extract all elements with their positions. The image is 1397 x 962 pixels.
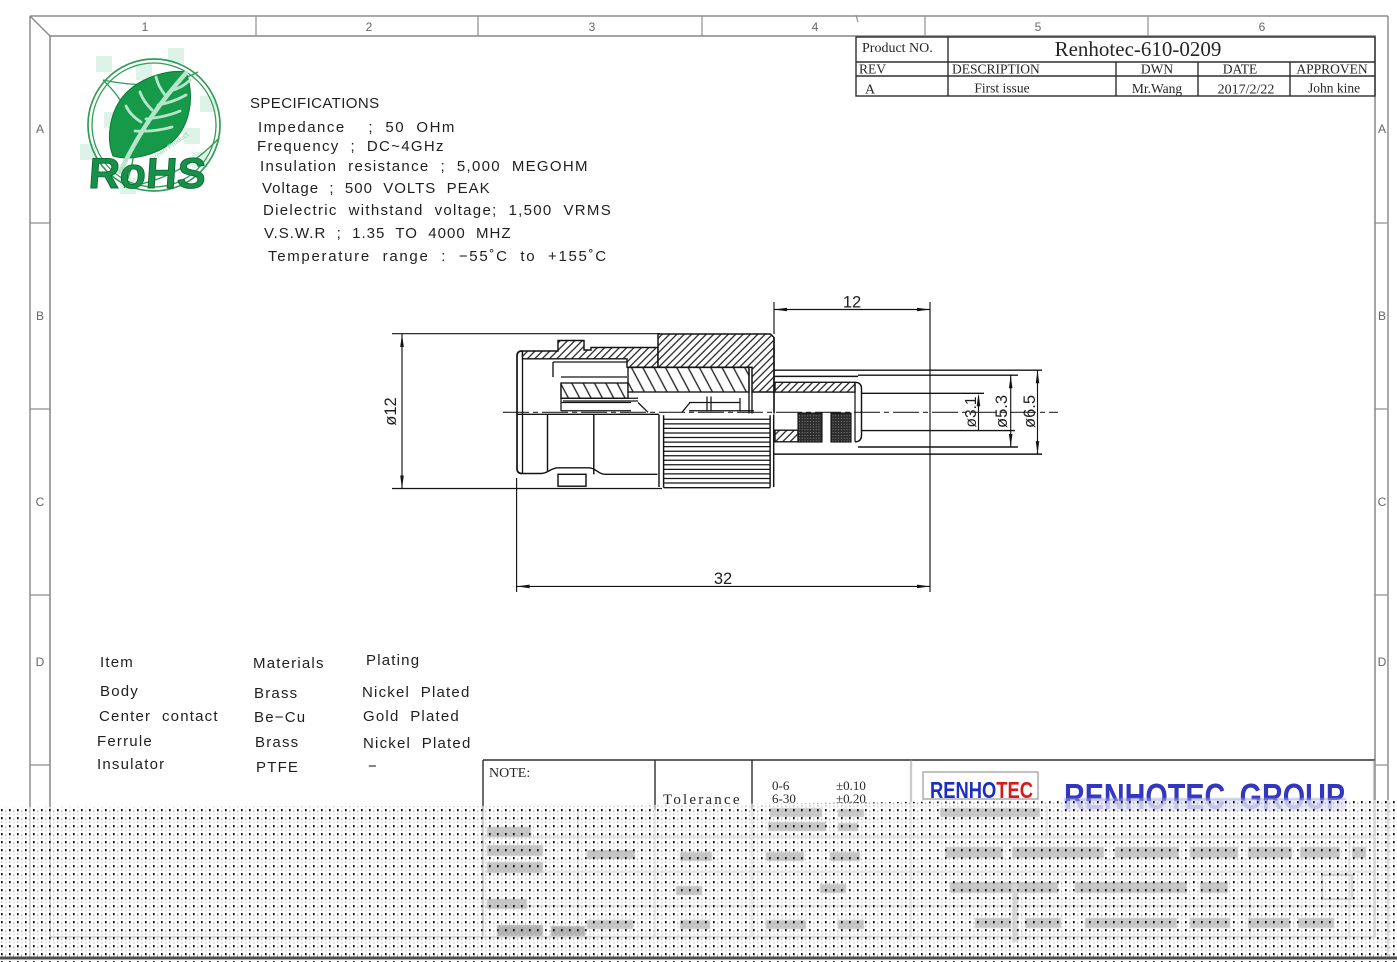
svg-text:6: 6 xyxy=(1259,20,1266,34)
svg-text:V.S.W.R ; 1.35 TO 4000 MH: V.S.W.R ; 1.35 TO 4000 MHZ xyxy=(264,225,511,242)
svg-text:C: C xyxy=(36,495,45,509)
svg-text:ø5.3: ø5.3 xyxy=(993,395,1011,428)
svg-text:Frequency ; DC~4GHz: Frequency ; DC~4GHz xyxy=(257,138,445,155)
svg-text:First issue: First issue xyxy=(974,81,1029,96)
svg-text:John kine: John kine xyxy=(1308,81,1360,96)
svg-text:Nickel Plated: Nickel Plated xyxy=(362,684,471,701)
svg-text:32: 32 xyxy=(714,570,732,588)
svg-text:Gold Plated: Gold Plated xyxy=(363,708,460,725)
svg-text:Dielectric withstand voltage: Dielectric withstand voltage; 1,500 VRMS xyxy=(263,202,612,219)
svg-text:REV: REV xyxy=(859,62,886,77)
svg-text:A: A xyxy=(865,83,876,98)
svg-text:Insulation resistance ; 5,0: Insulation resistance ; 5,000 MEGOHM xyxy=(260,158,589,175)
svg-text:A: A xyxy=(36,122,44,136)
svg-text:D: D xyxy=(1378,655,1387,669)
svg-text:NOTE:: NOTE: xyxy=(489,766,530,781)
svg-text:APPROVEN: APPROVEN xyxy=(1296,62,1368,77)
svg-text:ø3.1: ø3.1 xyxy=(963,396,980,427)
svg-text:Insulator: Insulator xyxy=(97,756,165,773)
svg-text:Product NO.: Product NO. xyxy=(862,41,933,56)
svg-text:A: A xyxy=(1378,122,1386,136)
svg-text:Item: Item xyxy=(100,654,134,671)
svg-text:Nickel Plated: Nickel Plated xyxy=(363,735,472,752)
svg-text:Impedance ; 50 OHm: Impedance ; 50 OHm xyxy=(258,119,456,136)
svg-text:2017/2/22: 2017/2/22 xyxy=(1218,83,1275,98)
svg-text:PTFE: PTFE xyxy=(256,759,299,776)
svg-text:B: B xyxy=(36,309,44,323)
svg-text:3: 3 xyxy=(589,20,596,34)
svg-text:Be−Cu: Be−Cu xyxy=(254,709,306,726)
svg-text:1: 1 xyxy=(142,20,149,34)
svg-text:RoHS: RoHS xyxy=(87,150,207,198)
svg-text:12: 12 xyxy=(843,294,861,312)
svg-text:D: D xyxy=(36,655,45,669)
svg-text:Temperature range : −55˚C: Temperature range : −55˚C to +155˚C xyxy=(268,248,608,265)
svg-text:DESCRIPTION: DESCRIPTION xyxy=(952,62,1040,77)
svg-text:DWN: DWN xyxy=(1141,62,1173,77)
svg-text:Body: Body xyxy=(100,683,139,700)
svg-text:−: − xyxy=(368,758,378,775)
svg-text:Brass: Brass xyxy=(254,685,298,702)
svg-text:2: 2 xyxy=(366,20,373,34)
svg-text:B: B xyxy=(1378,309,1386,323)
svg-text:Mr.Wang: Mr.Wang xyxy=(1132,81,1183,96)
svg-text:Brass: Brass xyxy=(255,734,299,751)
svg-text:Materials: Materials xyxy=(253,655,325,672)
svg-text:5: 5 xyxy=(1035,20,1042,34)
svg-text:RENHOTEC: RENHOTEC xyxy=(930,777,1033,803)
svg-text:Plating: Plating xyxy=(366,652,420,669)
svg-text:ø12: ø12 xyxy=(382,397,400,425)
svg-text:C: C xyxy=(1378,495,1387,509)
svg-text:Voltage ; 500 VOLTS PEAK: Voltage ; 500 VOLTS PEAK xyxy=(262,180,491,197)
svg-text:Ferrule: Ferrule xyxy=(97,733,153,750)
svg-text:ø6.5: ø6.5 xyxy=(1021,395,1039,428)
svg-text:4: 4 xyxy=(812,20,819,34)
svg-text:Center contact: Center contact xyxy=(99,708,219,725)
svg-text:DATE: DATE xyxy=(1223,62,1258,77)
svg-text:Renhotec-610-0209: Renhotec-610-0209 xyxy=(1055,37,1222,61)
svg-text:SPECIFICATIONS: SPECIFICATIONS xyxy=(250,95,380,112)
